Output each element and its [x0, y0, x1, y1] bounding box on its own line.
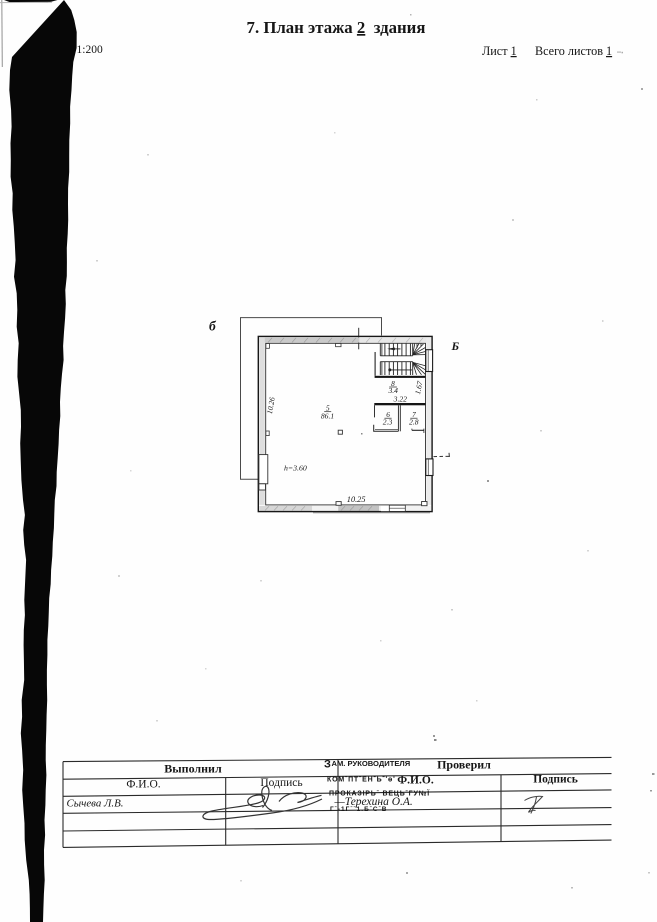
- svg-text:б: б: [209, 319, 217, 334]
- svg-text:10.26: 10.26: [265, 396, 277, 415]
- svg-text:Подпись: Подпись: [533, 773, 578, 785]
- svg-text:2.3: 2.3: [383, 417, 393, 426]
- svg-text:Сычева Л.В.: Сычева Л.В.: [67, 797, 124, 809]
- svg-text:86.1: 86.1: [321, 411, 334, 420]
- svg-text:Лист 1Всего листов 1: Лист 1Всего листов 1: [482, 44, 612, 58]
- svg-text:3.4: 3.4: [387, 386, 398, 395]
- svg-text:Б: Б: [451, 339, 460, 353]
- svg-text:h=3.60: h=3.60: [284, 463, 307, 472]
- svg-text:ПРОКАЗІРЬˉ ВЕЦЬˉГУ№Ї: ПРОКАЗІРЬˉ ВЕЦЬˉГУ№Ї: [329, 789, 430, 797]
- svg-text:Ф.И.О.: Ф.И.О.: [397, 775, 434, 787]
- svg-text:З: З: [324, 759, 331, 771]
- svg-text:1:200: 1:200: [77, 44, 103, 56]
- svg-text:Выполнил: Выполнил: [164, 761, 222, 775]
- svg-text:Проверил: Проверил: [437, 757, 491, 771]
- svg-text:Подпись: Подпись: [260, 777, 302, 789]
- svg-text:3.22: 3.22: [393, 395, 407, 404]
- svg-text:АМ. РУКОВОДИТЕЛЯ: АМ. РУКОВОДИТЕЛЯ: [332, 759, 411, 768]
- svg-text:Ф.И.О.: Ф.И.О.: [126, 778, 160, 790]
- svg-text:7. План этажа 2 здания: 7. План этажа 2 здания: [247, 18, 426, 37]
- svg-text:10.25: 10.25: [347, 495, 366, 504]
- svg-text:КОМˉПТˉЕНˉЬˉʹөʹ: КОМˉПТˉЕНˉЬˉʹөʹ: [327, 777, 396, 784]
- svg-text:1.67: 1.67: [413, 379, 425, 395]
- svg-text:Гˉ-1Гˉˉ1.БˉСˉВ: Гˉ-1Гˉˉ1.БˉСˉВ: [330, 806, 387, 813]
- svg-text:2.8: 2.8: [409, 417, 419, 426]
